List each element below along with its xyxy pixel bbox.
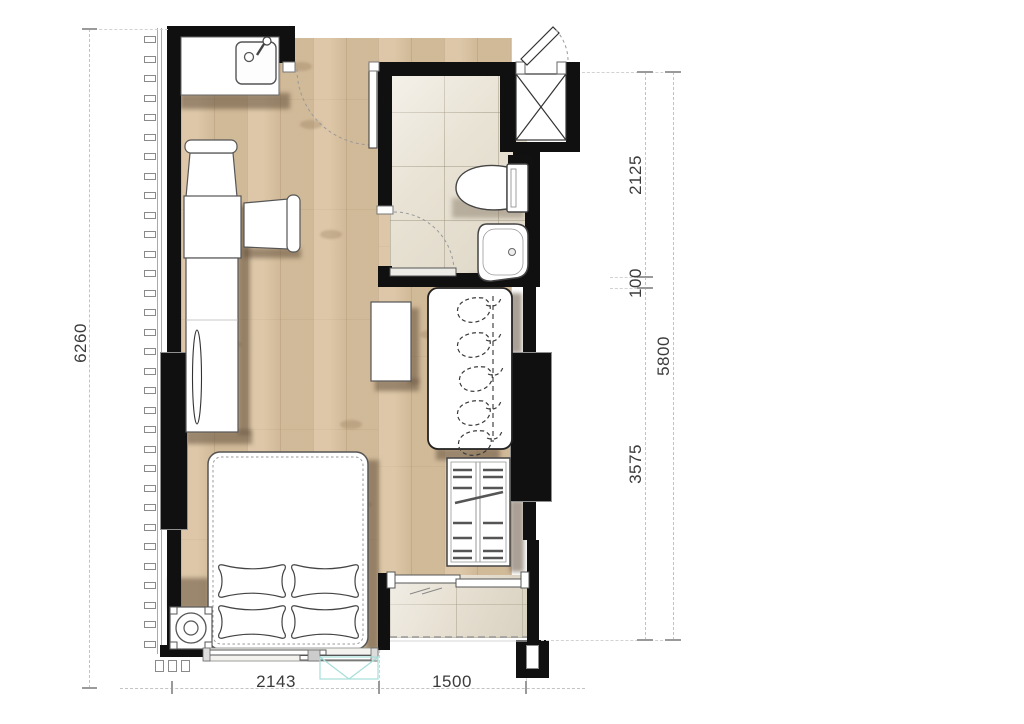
sliding-panel xyxy=(392,575,460,583)
dimension-tick xyxy=(665,71,681,73)
balcony-sliding-door xyxy=(387,572,529,594)
dimension-line-bottom xyxy=(120,688,585,689)
dimension-extension xyxy=(541,640,678,641)
dimension-label-bottom-segment: 2143 xyxy=(256,672,296,692)
kitchen-counter xyxy=(181,37,279,95)
coffee-table xyxy=(371,302,411,381)
level-mark xyxy=(410,588,442,594)
dimension-tick xyxy=(637,639,653,641)
pillow xyxy=(219,565,286,598)
dimension-label-right-segment: 100 xyxy=(626,268,646,298)
dimension-extension xyxy=(582,72,678,73)
chair-back xyxy=(185,140,237,153)
wash-basin xyxy=(478,224,528,281)
chair-back xyxy=(287,195,300,252)
drawer-unit xyxy=(447,458,510,566)
entrance-door xyxy=(283,62,379,148)
bathroom-door xyxy=(377,206,456,276)
chair xyxy=(244,199,288,249)
balcony-railing xyxy=(390,637,527,641)
dimension-tick xyxy=(637,71,653,73)
pillow xyxy=(219,606,286,639)
sliding-panel xyxy=(456,579,524,587)
service-shaft xyxy=(516,27,568,140)
dimension-tick xyxy=(82,687,97,689)
dimension-label-right-segment: 2125 xyxy=(626,155,646,195)
door-leaf xyxy=(521,27,559,65)
dimension-extension xyxy=(89,29,168,30)
dimension-tick xyxy=(665,639,681,641)
door-swing-arc xyxy=(394,212,454,272)
dimension-label-bottom-segment: 1500 xyxy=(432,672,472,692)
fixtures-layer xyxy=(0,0,1024,724)
dining-set xyxy=(184,140,300,258)
door-leaf xyxy=(369,64,377,148)
toilet xyxy=(456,155,532,212)
floor-plan: 6260 2125 100 3575 5800 2143 1500 xyxy=(0,0,1024,724)
dimension-tick xyxy=(525,681,527,694)
chair xyxy=(186,153,237,197)
dining-table xyxy=(184,196,241,258)
dimension-label-left-total: 6260 xyxy=(71,323,91,363)
dimension-tick xyxy=(171,681,173,694)
door-leaf xyxy=(390,268,456,276)
tv-console xyxy=(186,258,238,432)
pillow xyxy=(292,606,359,639)
dimension-label-right-total: 5800 xyxy=(654,336,674,376)
dimension-tick xyxy=(82,28,97,30)
nightstand xyxy=(170,607,212,649)
dimension-tick xyxy=(378,681,380,694)
bed xyxy=(208,452,368,649)
dimension-label-right-segment: 3575 xyxy=(626,444,646,484)
tv xyxy=(193,330,202,424)
door-swing-arc xyxy=(297,69,373,145)
pillow xyxy=(292,565,359,598)
kitchen-sink xyxy=(236,42,276,84)
wardrobe xyxy=(428,288,512,455)
